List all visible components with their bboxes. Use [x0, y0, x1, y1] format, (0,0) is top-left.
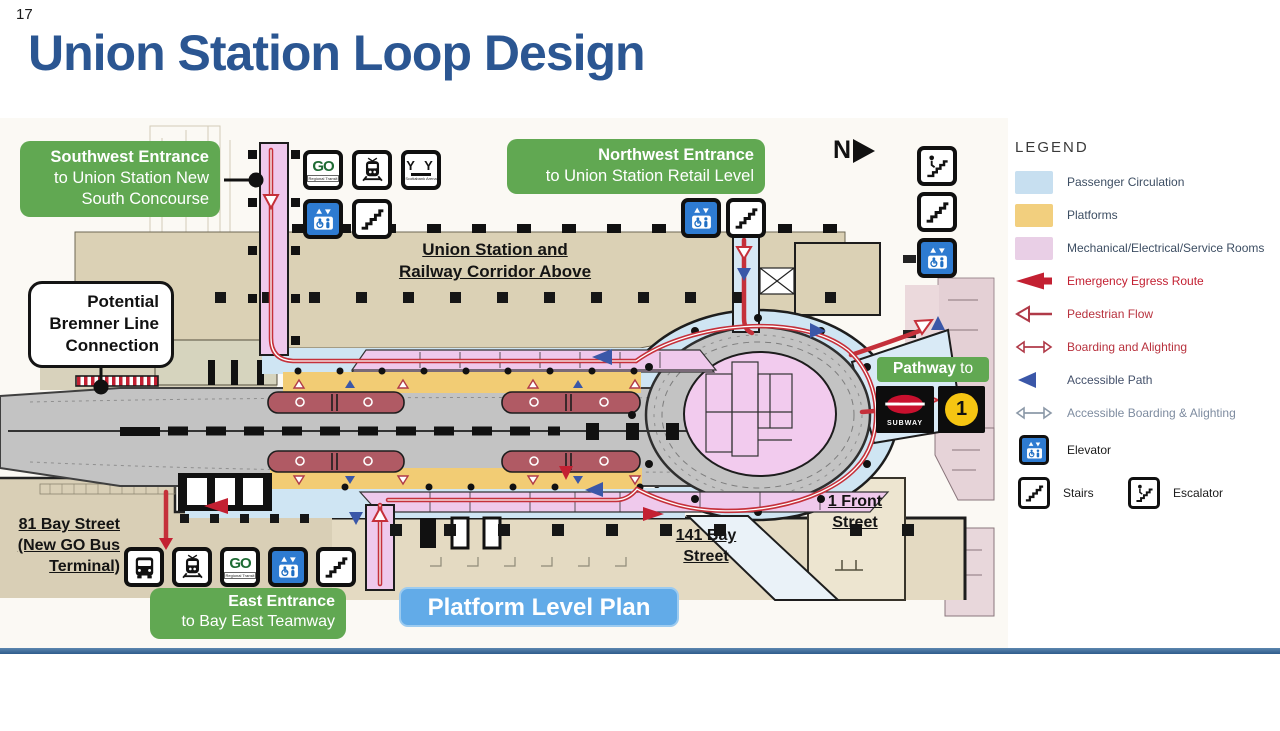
callout-pathway-rest: to — [956, 360, 973, 377]
callout-bremner-line3: Connection — [66, 336, 160, 355]
legend-item-elevator: Elevator — [1015, 434, 1277, 466]
ttc-subway-badge: SUBWAY — [876, 386, 934, 433]
label-1-front-street: 1 Front Street — [818, 492, 892, 534]
label-front1-line2: Street — [818, 513, 892, 534]
callout-east-line2: to Bay East Teamway — [181, 613, 335, 630]
legend-label: Passenger Circulation — [1067, 175, 1184, 189]
arena-subtext: Scotiabank Arena — [405, 177, 436, 181]
callout-bremner-line2: Bremner Line — [49, 314, 159, 333]
legend-item-mechanical-rooms: Mechanical/Electrical/Service Rooms — [1015, 236, 1277, 260]
north-label: N — [833, 136, 851, 165]
go-letters: GO — [229, 556, 250, 571]
legend-label: Stairs — [1063, 486, 1115, 500]
train-icon — [352, 150, 392, 190]
callout-east-title: East Entrance — [228, 593, 335, 610]
stairs-icon — [726, 198, 766, 238]
elevator-icon — [681, 198, 721, 238]
callout-southwest-line2: to Union Station New — [54, 169, 209, 187]
legend-label: Accessible Path — [1067, 373, 1152, 387]
legend-panel: LEGEND Passenger Circulation Platforms M… — [1015, 139, 1277, 511]
legend-item-emergency-egress: Emergency Egress Route — [1015, 269, 1277, 293]
label-bay141-line1: 141 Bay — [662, 526, 750, 547]
stairs-icon — [1018, 477, 1050, 509]
label-bay141-line2: Street — [662, 547, 750, 568]
plan-title-badge: Platform Level Plan — [399, 587, 679, 627]
passenger-circulation-swatch — [1015, 171, 1053, 194]
subway-label: SUBWAY — [887, 420, 923, 427]
legend-label: Emergency Egress Route — [1067, 274, 1204, 288]
bremner-connection-hatch — [76, 376, 158, 386]
platforms-swatch — [1015, 204, 1053, 227]
legend-label: Platforms — [1067, 208, 1118, 222]
label-141-bay-street: 141 Bay Street — [662, 526, 750, 568]
elevator-icon — [303, 199, 343, 239]
emergency-egress-arrow-icon — [1015, 272, 1053, 290]
legend-title: LEGEND — [1015, 139, 1277, 156]
stairs-icon — [917, 192, 957, 232]
slide-footer-rule — [0, 648, 1280, 654]
line-1-number: 1 — [945, 393, 978, 426]
go-transit-icon: GO Regional Transit — [303, 150, 343, 190]
label-bay81-line1: 81 Bay Street — [4, 515, 120, 536]
escalator-icon — [1128, 477, 1160, 509]
boarding-alighting-arrow-icon — [1015, 338, 1053, 356]
callout-bremner-connection: Potential Bremner Line Connection — [28, 281, 174, 368]
page-number: 17 — [16, 6, 33, 23]
mechanical-rooms-swatch — [1015, 237, 1053, 260]
legend-label: Accessible Boarding & Alighting — [1067, 406, 1236, 420]
escalator-icon — [917, 146, 957, 186]
legend-item-accessible-path: Accessible Path — [1015, 368, 1277, 392]
stairs-icon — [352, 199, 392, 239]
go-letters: GO — [312, 159, 333, 174]
callout-northwest-line2: to Union Station Retail Level — [546, 167, 754, 185]
go-subtext: Regional Transit — [224, 572, 257, 579]
callout-southwest-title: Southwest Entrance — [50, 148, 209, 166]
scotiabank-arena-icon: Y Y Scotiabank Arena — [401, 150, 441, 190]
callout-east-entrance: East Entrance to Bay East Teamway — [150, 588, 346, 639]
label-bay81-line3: Terminal) — [4, 557, 120, 578]
legend-item-platforms: Platforms — [1015, 203, 1277, 227]
legend-item-passenger-circulation: Passenger Circulation — [1015, 170, 1277, 194]
label-railway-corridor: Union Station and Railway Corridor Above — [372, 239, 618, 283]
callout-southwest-line3: South Concourse — [82, 190, 210, 208]
arena-letters: Y Y — [406, 159, 435, 172]
label-81-bay-street: 81 Bay Street (New GO Bus Terminal) — [4, 515, 120, 577]
legend-label: Mechanical/Electrical/Service Rooms — [1067, 241, 1264, 255]
label-front1-line1: 1 Front — [818, 492, 892, 513]
callout-southwest-entrance: Southwest Entrance to Union Station New … — [20, 141, 220, 217]
label-corridor-line1: Union Station and — [372, 239, 618, 261]
legend-item-boarding-alighting: Boarding and Alighting — [1015, 335, 1277, 359]
legend-label: Elevator — [1067, 443, 1111, 457]
callout-northwest-title: Northwest Entrance — [598, 146, 754, 164]
label-corridor-line2: Railway Corridor Above — [372, 261, 618, 283]
legend-label: Escalator — [1173, 486, 1223, 500]
train-icon — [172, 547, 212, 587]
callout-northwest-entrance: Northwest Entrance to Union Station Reta… — [507, 139, 765, 194]
legend-label: Boarding and Alighting — [1067, 340, 1187, 354]
go-subtext: Regional Transit — [307, 175, 340, 182]
bus-icon — [124, 547, 164, 587]
stairs-icon — [316, 547, 356, 587]
subway-line-1-badge: 1 — [938, 386, 985, 433]
go-transit-icon: GO Regional Transit — [220, 547, 260, 587]
accessible-path-triangle-icon — [1015, 371, 1053, 389]
elevator-icon — [1019, 435, 1049, 465]
legend-item-pedestrian-flow: Pedestrian Flow — [1015, 302, 1277, 326]
legend-label: Pedestrian Flow — [1067, 307, 1153, 321]
pedestrian-flow-arrow-icon — [1015, 305, 1053, 323]
legend-item-stairs-escalator: Stairs Escalator — [1015, 475, 1277, 511]
page-title: Union Station Loop Design — [28, 24, 645, 82]
elevator-icon — [917, 238, 957, 278]
elevator-icon — [268, 547, 308, 587]
label-bay81-line2: (New GO Bus — [4, 536, 120, 557]
callout-bremner-line1: Potential — [87, 292, 159, 311]
callout-pathway-to: Pathway to — [877, 357, 989, 382]
legend-item-accessible-boarding: Accessible Boarding & Alighting — [1015, 401, 1277, 425]
north-arrow: N — [833, 136, 875, 165]
callout-pathway-bold: Pathway — [893, 360, 956, 377]
north-triangle-icon — [853, 139, 875, 163]
ttc-logo-icon — [881, 393, 929, 419]
accessible-boarding-arrow-icon — [1015, 404, 1053, 422]
